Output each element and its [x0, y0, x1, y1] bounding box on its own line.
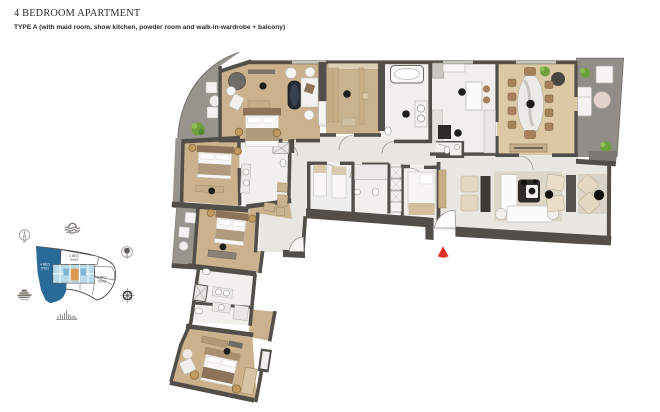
svg-text:XX03: XX03	[70, 258, 78, 262]
svg-text:XX02: XX02	[98, 279, 106, 283]
svg-text:XX01: XX01	[41, 266, 49, 270]
